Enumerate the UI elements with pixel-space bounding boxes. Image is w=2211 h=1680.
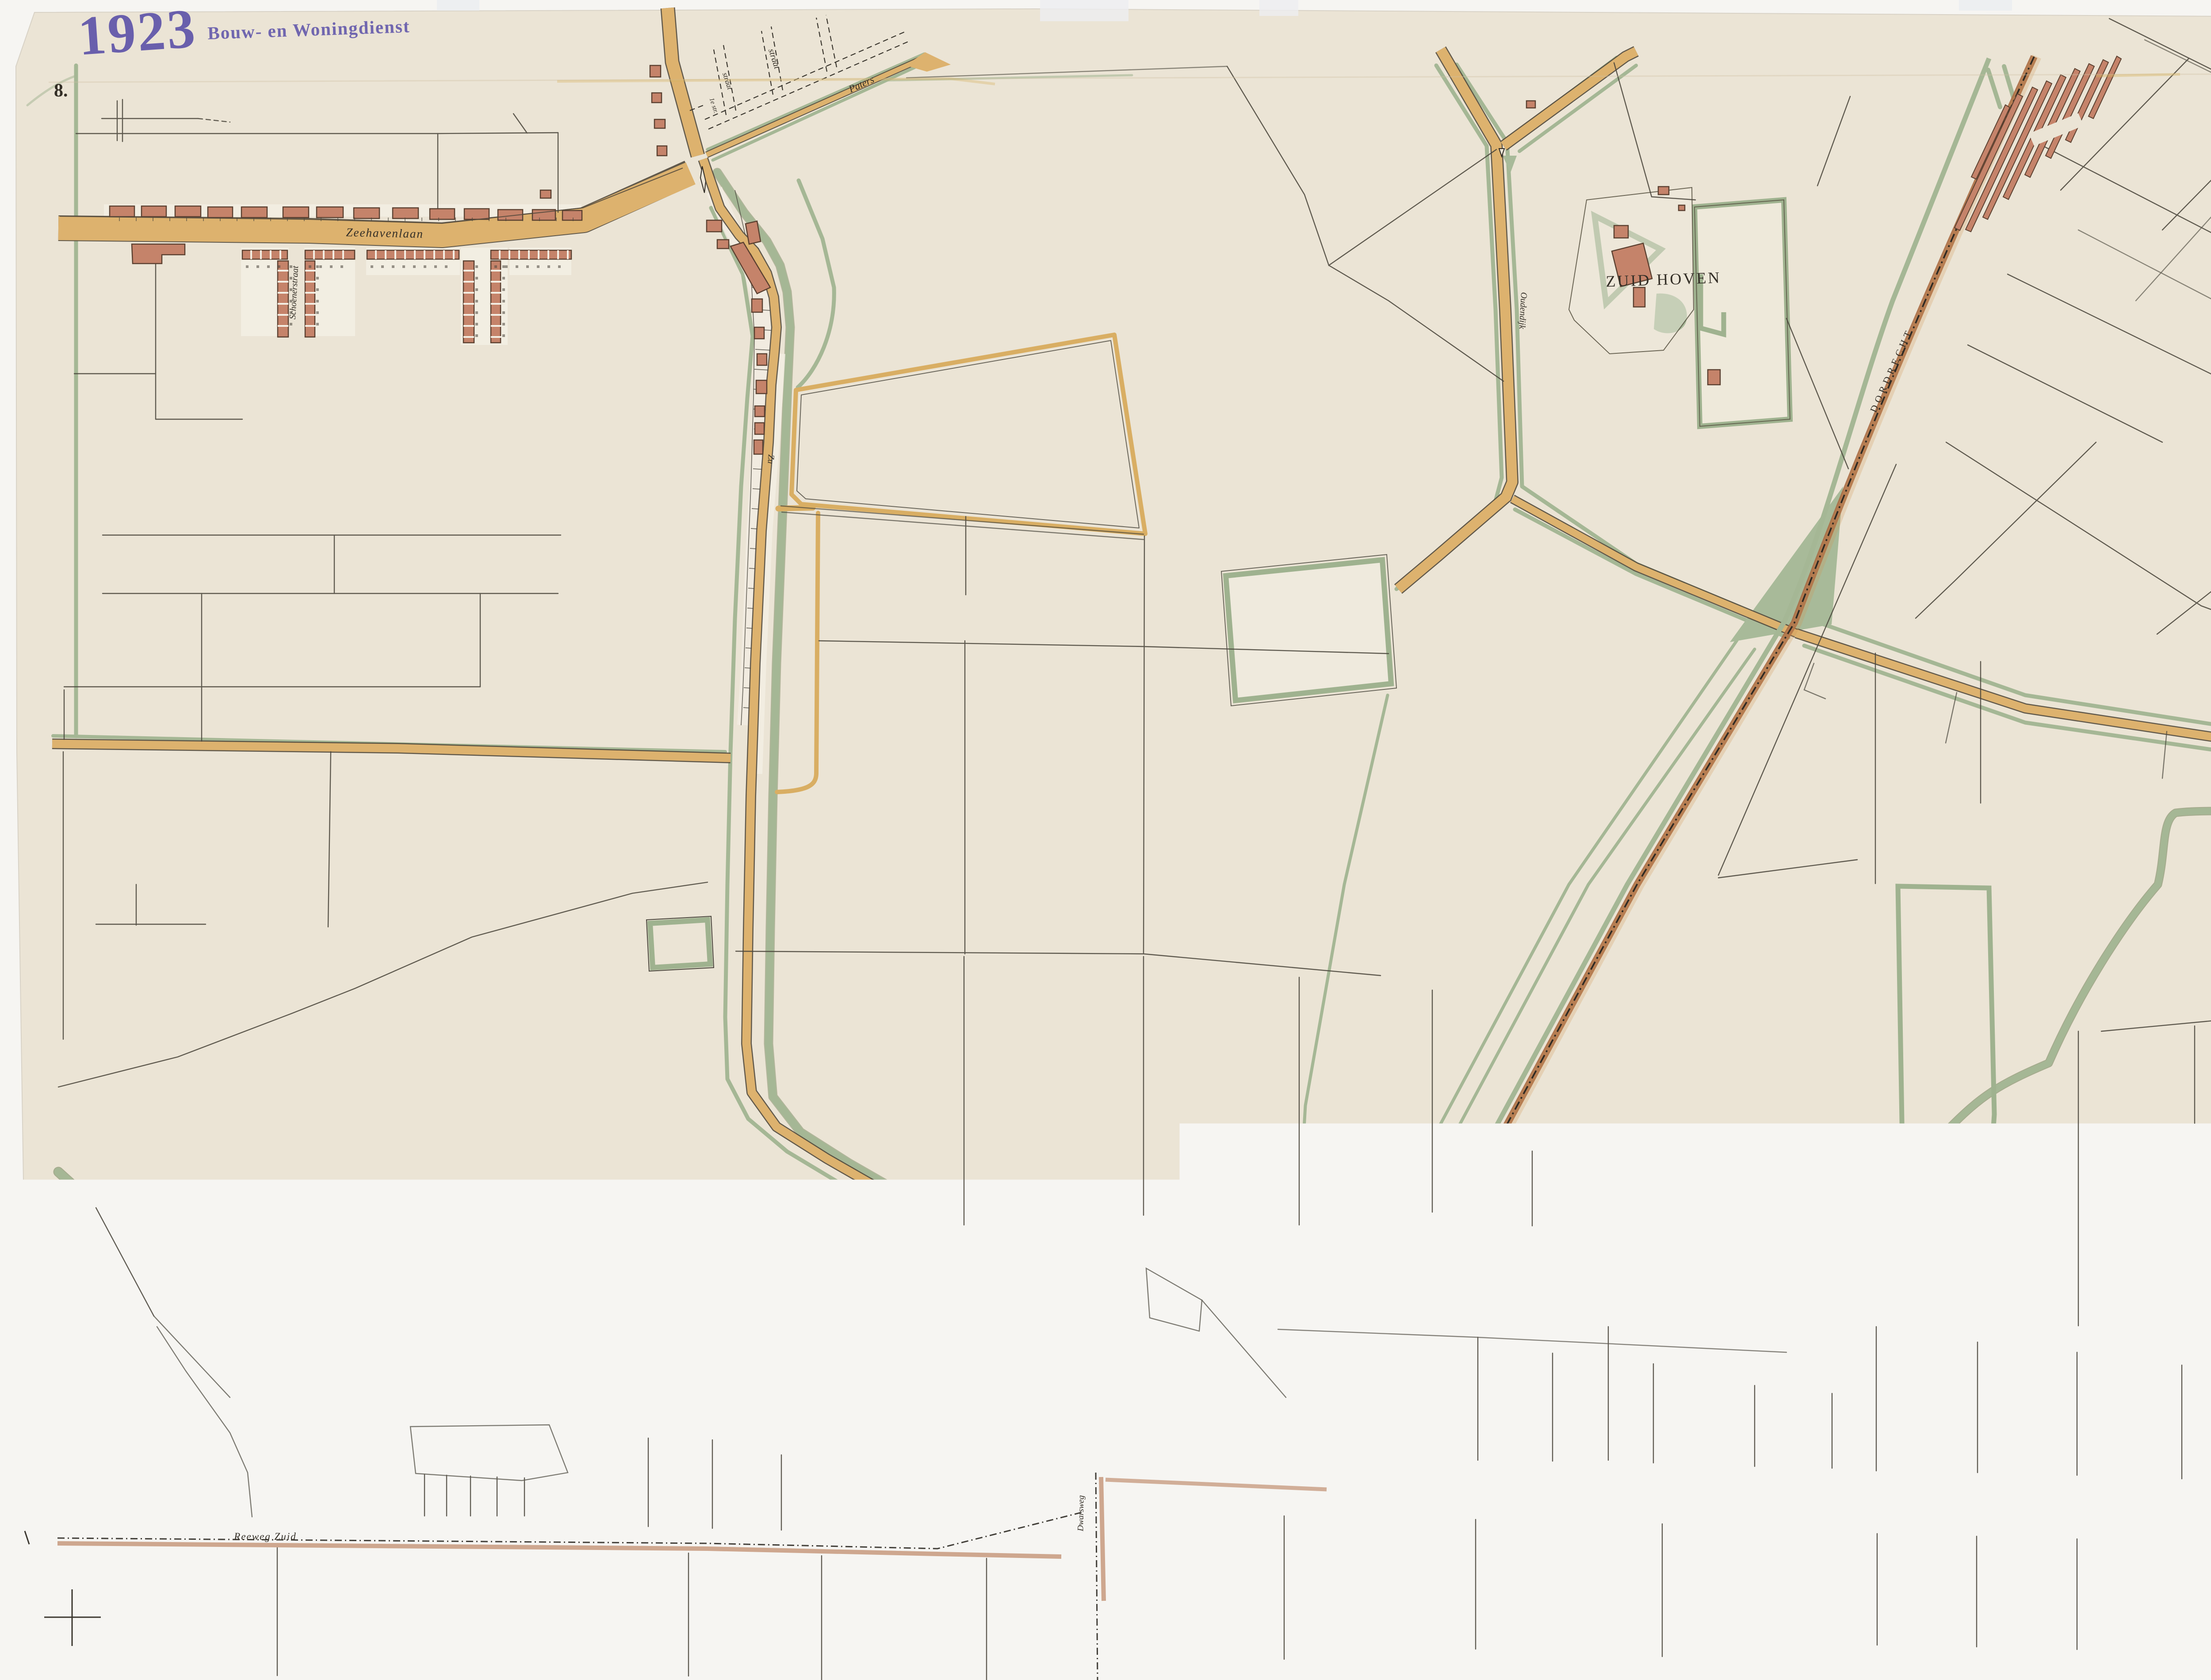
svg-text:1923: 1923	[76, 0, 199, 67]
svg-text:Oudendijk: Oudendijk	[1517, 292, 1529, 329]
svg-text:Zeehavenlaan: Zeehavenlaan	[346, 226, 424, 241]
svg-text:Reeweg Zuid: Reeweg Zuid	[233, 1531, 296, 1542]
svg-text:Kaartenkist: Kaartenkist	[2108, 1603, 2182, 1621]
svg-text:Krabbe: Krabbe	[218, 739, 246, 750]
svg-text:8.: 8.	[54, 80, 68, 101]
svg-text:weg: weg	[566, 744, 581, 754]
svg-text:Dwarsweg: Dwarsweg	[1076, 1495, 1086, 1532]
svg-text:Zuid Poldersche dijk: Zuid Poldersche dijk	[1801, 1483, 1896, 1495]
